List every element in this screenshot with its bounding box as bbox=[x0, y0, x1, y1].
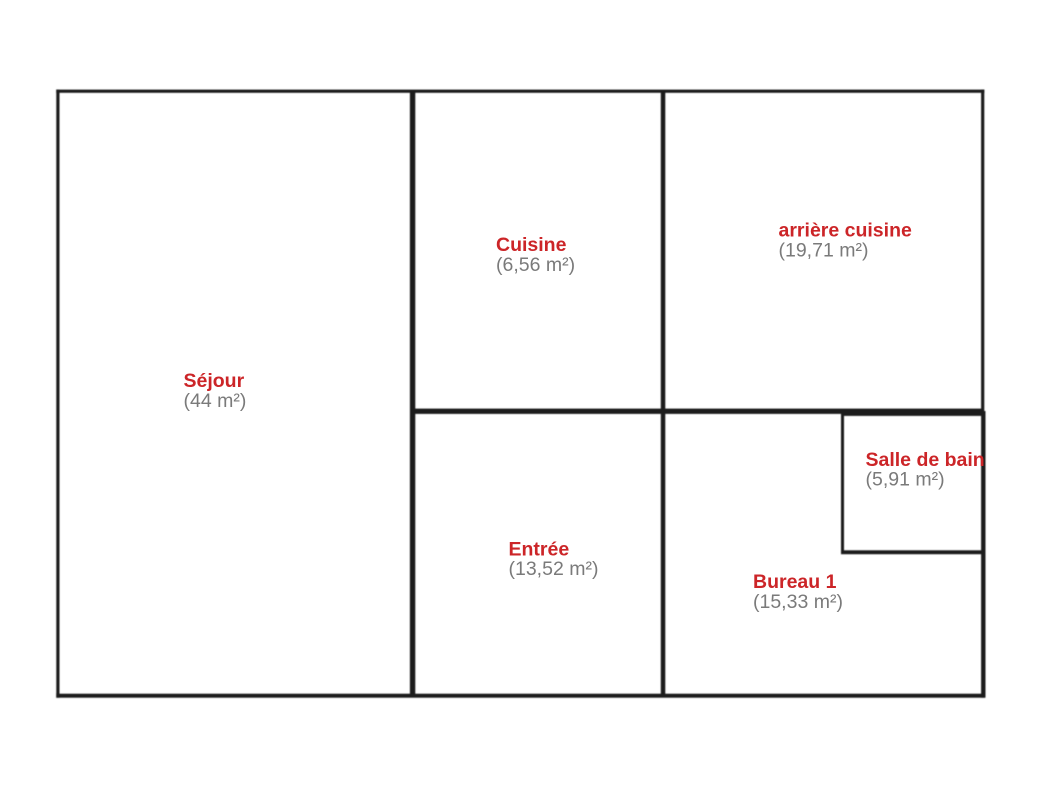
svg-text:(44 m²): (44 m²) bbox=[184, 390, 247, 412]
svg-text:Séjour: Séjour bbox=[184, 370, 245, 392]
svg-text:Bureau 1: Bureau 1 bbox=[753, 571, 837, 593]
svg-text:Cuisine: Cuisine bbox=[496, 234, 567, 256]
svg-text:(5,91 m²): (5,91 m²) bbox=[866, 468, 945, 490]
svg-text:(15,33 m²): (15,33 m²) bbox=[753, 591, 843, 613]
svg-text:(6,56 m²): (6,56 m²) bbox=[496, 254, 575, 276]
svg-text:(13,52 m²): (13,52 m²) bbox=[509, 558, 599, 580]
svg-text:(19,71 m²): (19,71 m²) bbox=[779, 240, 869, 262]
svg-text:arrière cuisine: arrière cuisine bbox=[779, 220, 912, 242]
